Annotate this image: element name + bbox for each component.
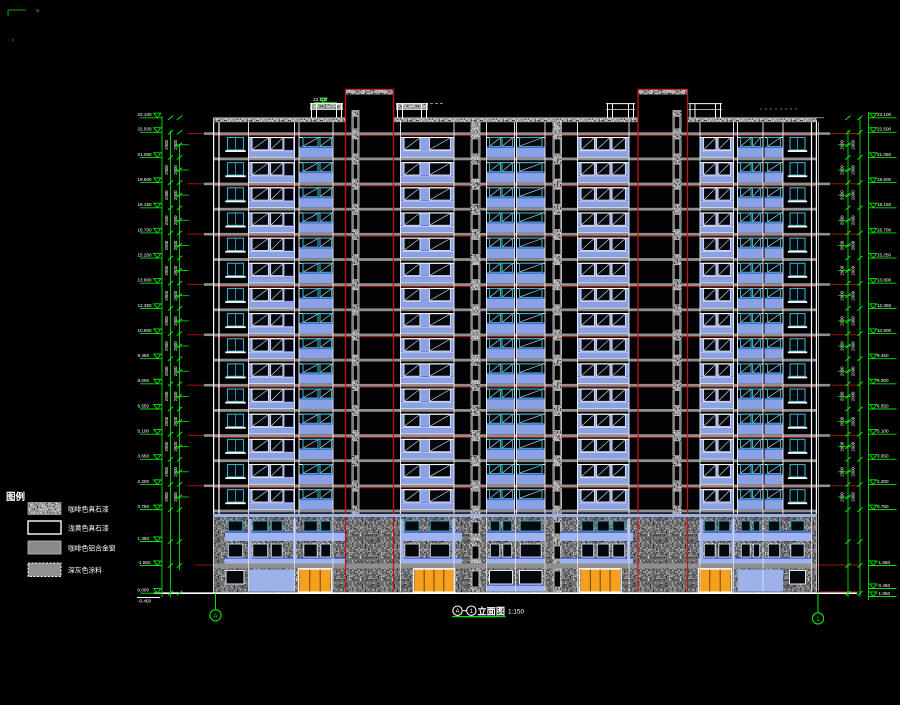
svg-text:23.100: 23.100: [877, 112, 891, 117]
svg-text:16.700: 16.700: [138, 227, 152, 232]
svg-text:2900: 2900: [851, 140, 856, 150]
svg-text:2900: 2900: [164, 290, 169, 300]
svg-text:1:150: 1:150: [508, 609, 524, 616]
svg-text:2900: 2900: [164, 215, 169, 225]
svg-text:10.900: 10.900: [138, 328, 152, 333]
svg-text:18.150: 18.150: [138, 202, 152, 207]
svg-text:19.600: 19.600: [138, 177, 152, 182]
svg-text:1: 1: [816, 616, 820, 623]
svg-text:3.650: 3.650: [877, 454, 889, 459]
svg-text:2900: 2900: [851, 416, 856, 426]
svg-text:13.800: 13.800: [877, 278, 891, 283]
svg-text:浅黄色真石漆: 浅黄色真石漆: [68, 524, 109, 533]
svg-text:3.650: 3.650: [138, 454, 150, 459]
svg-text:21.050: 21.050: [877, 152, 891, 157]
svg-text:2900: 2900: [851, 215, 856, 225]
svg-text:23.100: 23.100: [138, 112, 152, 117]
svg-text:22.500: 22.500: [138, 127, 152, 132]
svg-text:2900: 2900: [851, 467, 856, 477]
svg-text:15.250: 15.250: [138, 253, 152, 258]
svg-text:2900: 2900: [851, 316, 856, 326]
svg-text:2900: 2900: [164, 341, 169, 351]
svg-text:21.050: 21.050: [138, 152, 152, 157]
svg-text:2900: 2900: [164, 316, 169, 326]
svg-text:9.450: 9.450: [138, 353, 150, 358]
svg-text:8.000: 8.000: [877, 378, 889, 383]
svg-text:2900: 2900: [851, 366, 856, 376]
svg-text:2900: 2900: [851, 290, 856, 300]
svg-text:2900: 2900: [164, 391, 169, 401]
svg-text:2900: 2900: [164, 492, 169, 502]
svg-text:5.100: 5.100: [877, 429, 889, 434]
svg-text:2900: 2900: [164, 140, 169, 150]
svg-text:-1.550: -1.550: [138, 560, 151, 565]
svg-text:-1.050: -1.050: [877, 591, 890, 596]
svg-text:2900: 2900: [851, 441, 856, 451]
svg-text:N: N: [36, 8, 39, 13]
svg-text:-0.450: -0.450: [877, 583, 890, 588]
svg-text:图例: 图例: [6, 491, 25, 503]
svg-text:2900: 2900: [164, 441, 169, 451]
svg-text:6.550: 6.550: [138, 403, 150, 408]
svg-text:2900: 2900: [164, 190, 169, 200]
svg-text:0.000: 0.000: [138, 588, 150, 593]
svg-text:2900: 2900: [164, 366, 169, 376]
svg-text:2900: 2900: [164, 165, 169, 175]
svg-text:2900: 2900: [164, 467, 169, 477]
svg-text:13.800: 13.800: [138, 278, 152, 283]
svg-text:2.200: 2.200: [877, 479, 889, 484]
svg-text:19.600: 19.600: [877, 177, 891, 182]
svg-text:2900: 2900: [164, 416, 169, 426]
svg-text:0.750: 0.750: [138, 504, 150, 509]
svg-text:2900: 2900: [851, 165, 856, 175]
svg-text:8.000: 8.000: [138, 378, 150, 383]
svg-text:A: A: [455, 609, 459, 615]
svg-text:2.200: 2.200: [138, 479, 150, 484]
svg-text:16.700: 16.700: [877, 227, 891, 232]
svg-text:12.350: 12.350: [138, 303, 152, 308]
svg-text:2900: 2900: [851, 391, 856, 401]
svg-text:0.750: 0.750: [877, 504, 889, 509]
svg-text:2900: 2900: [851, 240, 856, 250]
svg-text:5.100: 5.100: [138, 429, 150, 434]
svg-text:2900: 2900: [851, 492, 856, 502]
svg-text:-1.550: -1.550: [877, 560, 890, 565]
svg-text:-0.450: -0.450: [138, 599, 151, 604]
svg-text:2900: 2900: [164, 240, 169, 250]
svg-text:12.350: 12.350: [877, 303, 891, 308]
svg-text:23.100: 23.100: [313, 97, 327, 102]
svg-text:2900: 2900: [851, 341, 856, 351]
svg-text:咖啡色铝合金窗: 咖啡色铝合金窗: [68, 544, 116, 553]
svg-text:1.350: 1.350: [138, 536, 150, 541]
svg-text:2900: 2900: [851, 265, 856, 275]
svg-text:22.500: 22.500: [877, 127, 891, 132]
svg-text:2900: 2900: [164, 265, 169, 275]
svg-text:15.250: 15.250: [877, 253, 891, 258]
svg-text:咖啡色真石漆: 咖啡色真石漆: [68, 505, 109, 514]
svg-text:6.550: 6.550: [877, 403, 889, 408]
svg-text:2900: 2900: [851, 190, 856, 200]
svg-text:深灰色涂料: 深灰色涂料: [68, 566, 102, 575]
svg-text:18.150: 18.150: [877, 202, 891, 207]
svg-text:9.450: 9.450: [877, 353, 889, 358]
svg-text:10.900: 10.900: [877, 328, 891, 333]
svg-text:立面图: 立面图: [478, 605, 506, 616]
